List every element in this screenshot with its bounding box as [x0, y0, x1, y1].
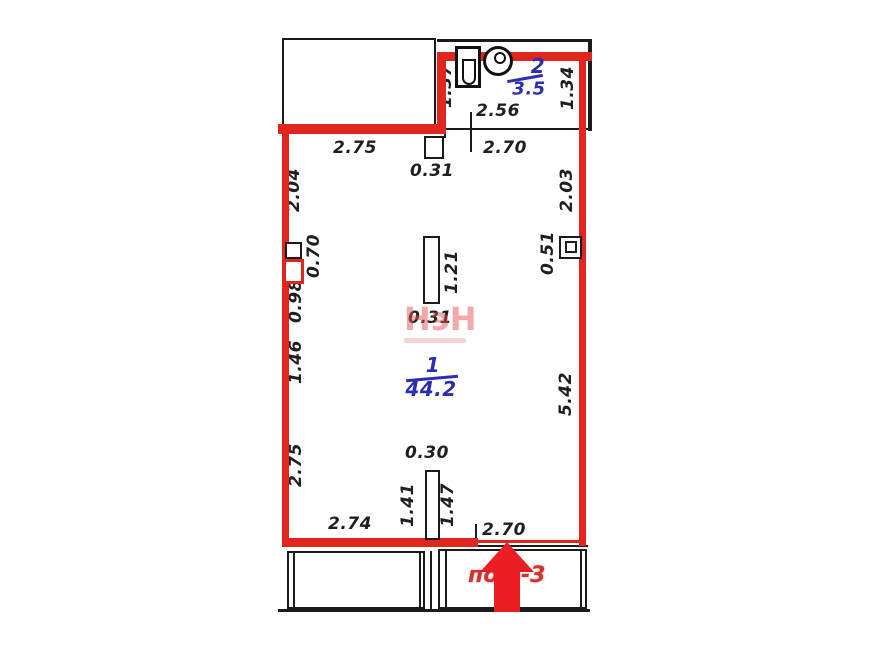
sink-icon: [455, 46, 481, 88]
dim-stub-height-right: 1.47: [438, 483, 458, 527]
dim-column-height: 1.21: [442, 250, 462, 294]
top-column: [424, 136, 444, 159]
toilet-inner: [494, 52, 506, 64]
dim-top-right: 2.70: [483, 138, 527, 158]
dim-bath-height-right: 1.34: [558, 66, 578, 110]
bottom-outer-line: [278, 609, 590, 612]
dim-left-middle: 1.46: [286, 340, 306, 384]
sink-basin: [462, 59, 476, 85]
duct-shaft-left-red: [283, 259, 304, 284]
dim-stub-height-left: 1.41: [398, 483, 418, 527]
dim-left-lower: 2.75: [286, 443, 306, 487]
boundary-top-thick: [278, 124, 446, 134]
boundary-bath-left: [437, 52, 446, 134]
bathroom-area: 3.5: [512, 79, 545, 100]
toilet-icon: [483, 46, 513, 76]
bathroom-bottom-wall: [437, 128, 589, 130]
dim-bath-width: 2.56: [476, 101, 520, 121]
dim-left-below-duct: 0.98: [286, 279, 306, 323]
dim-right-upper: 2.03: [557, 168, 577, 212]
neighbor-room: [282, 38, 436, 126]
floor-plan: по -3 НэН 2 3.5 1 44.2 2.75 0.31 2.70 2.…: [0, 0, 870, 652]
tick-mark-1: [470, 112, 472, 152]
dim-right-duct: 0.51: [538, 231, 558, 275]
living-number: 1: [426, 353, 440, 377]
middle-column: [423, 236, 440, 304]
dim-bottom-left: 2.74: [328, 514, 372, 534]
boundary-left: [282, 124, 289, 546]
duct-shaft-left-black: [285, 242, 302, 259]
dim-right-lower: 5.42: [556, 372, 576, 416]
dim-left-duct: 0.70: [304, 234, 324, 278]
dim-top-column: 0.31: [410, 161, 454, 181]
dim-stub-width: 0.30: [405, 443, 449, 463]
dim-top-left: 2.75: [333, 138, 377, 158]
boundary-right: [579, 52, 586, 546]
bottom-stub-wall: [425, 470, 440, 540]
balcony-separator-line: [430, 551, 432, 609]
watermark: НэН: [404, 300, 477, 338]
living-area: 44.2: [405, 377, 456, 401]
boundary-bottom-thick: [282, 538, 478, 547]
duct-shaft-right-inner: [565, 241, 577, 253]
balcony-left: [287, 551, 425, 609]
bathroom-top-wall: [437, 39, 592, 42]
dim-bottom-right: 2.70: [482, 520, 526, 540]
up-arrow-shaft: [494, 570, 520, 612]
up-arrow-icon: [480, 542, 534, 572]
watermark-subtext-bar: [404, 338, 466, 343]
balcony-left-inner-line: [293, 553, 421, 607]
